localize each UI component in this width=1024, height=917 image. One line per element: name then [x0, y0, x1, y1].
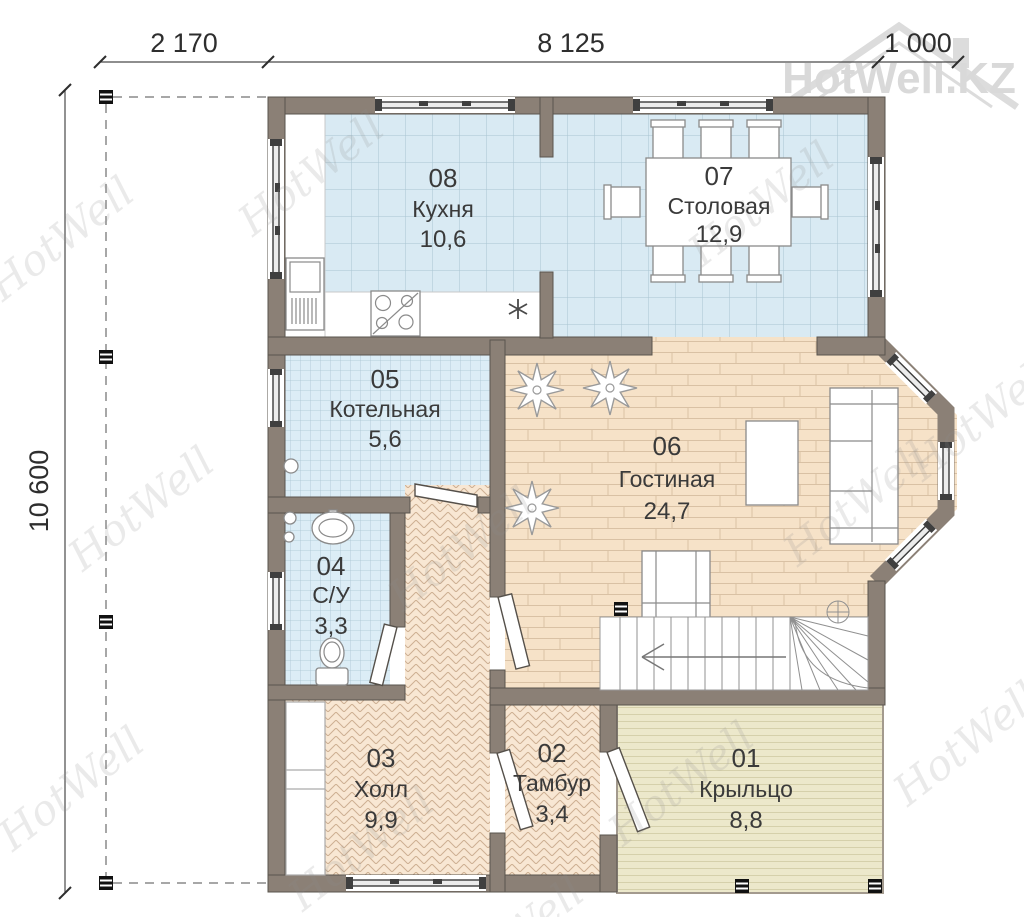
- chair: [653, 126, 683, 160]
- boiler-drain: [284, 459, 298, 473]
- wall-hall-vestibule-lower: [490, 833, 505, 892]
- window-boiler-left: [268, 369, 284, 427]
- room-label-bathroom-name: С/У: [312, 582, 350, 608]
- dimension-house-width: 8 125: [537, 28, 605, 58]
- room-label-kitchen-number: 08: [429, 163, 458, 193]
- floor-plan-page: HotWell.KZ: [0, 0, 1024, 917]
- wall-hall-vestibule-upper: [490, 700, 505, 753]
- dining-floor-lower: [553, 292, 868, 337]
- window-dining-top: [633, 97, 773, 113]
- plant-icon: [510, 363, 564, 417]
- wall-mid-horizontal-right: [817, 337, 885, 355]
- room-label-dining-number: 07: [705, 161, 734, 191]
- porch-post: [868, 879, 882, 893]
- terrace-post: [99, 350, 113, 364]
- wall-vestibule-right-upper: [600, 700, 617, 752]
- chair: [749, 126, 779, 160]
- chair: [653, 244, 683, 278]
- window-kitchen-top: [375, 97, 515, 113]
- plant-icon: [583, 361, 637, 415]
- room-label-boiler-area: 5,6: [368, 426, 401, 453]
- room-label-hall-number: 03: [367, 743, 396, 773]
- terrace-post: [99, 876, 113, 890]
- chair: [701, 126, 731, 160]
- logo-text: HotWell.KZ: [782, 54, 1016, 103]
- wall-right-lower: [868, 581, 885, 705]
- pipe-connection: [284, 532, 294, 542]
- chair: [749, 244, 779, 278]
- room-label-boiler-name: Котельная: [329, 396, 440, 422]
- room-label-living-number: 06: [653, 431, 682, 461]
- wall-mid-horizontal: [268, 337, 652, 355]
- room-label-living-name: Гостиная: [619, 466, 716, 492]
- washbasin: [312, 512, 354, 544]
- wall-kitchen-stub-lower: [540, 272, 553, 338]
- window-hall-bottom: [346, 875, 486, 891]
- terrace-post: [99, 615, 113, 629]
- terrace-post: [99, 90, 113, 104]
- wall-boiler-bottom: [268, 497, 410, 513]
- room-label-porch-area: 8,8: [729, 807, 762, 834]
- room-label-dining-name: Столовая: [668, 193, 771, 219]
- wall-kitchen-stub-upper: [540, 97, 553, 157]
- window-dining-right: [868, 157, 884, 297]
- chair: [610, 187, 640, 217]
- room-label-vestibule-name: Тамбур: [513, 770, 591, 796]
- room-label-boiler-number: 05: [371, 364, 400, 394]
- dimension-bay-width: 1 000: [884, 28, 952, 58]
- kitchen-drainer: [292, 298, 316, 324]
- stove-icon: [371, 291, 420, 336]
- wall-living-left: [490, 340, 505, 597]
- floor-plan-svg: HotWell.KZ: [0, 0, 1024, 917]
- room-label-bathroom-area: 3,3: [314, 613, 347, 640]
- window-bathroom-left: [268, 572, 284, 630]
- dimension-house-depth: 10 600: [24, 450, 54, 533]
- room-label-porch-number: 01: [732, 743, 761, 773]
- coffee-table: [746, 421, 798, 505]
- room-label-living-area: 24,7: [644, 498, 691, 525]
- room-label-hall-name: Холл: [354, 776, 408, 802]
- wall-vestibule-right-lower: [600, 835, 617, 892]
- dimension-terrace-width: 2 170: [150, 28, 218, 58]
- room-label-porch-name: Крыльцо: [699, 776, 793, 802]
- armchair: [642, 551, 710, 621]
- wall-bathroom-bottom: [268, 685, 405, 700]
- room-label-vestibule-area: 3,4: [535, 801, 568, 828]
- room-label-dining-area: 12,9: [696, 221, 743, 248]
- pipe-connection: [284, 512, 296, 524]
- kitchen-counter-bottom: [325, 292, 540, 340]
- room-label-hall-area: 9,9: [364, 807, 397, 834]
- room-label-bathroom-number: 04: [317, 551, 346, 581]
- floor-hatch: [614, 602, 628, 616]
- room-label-kitchen-name: Кухня: [412, 196, 474, 222]
- room-label-kitchen-area: 10,6: [420, 226, 467, 253]
- porch-post: [735, 879, 749, 893]
- wall-porch-top: [490, 688, 885, 705]
- room-label-vestibule-number: 02: [538, 738, 567, 768]
